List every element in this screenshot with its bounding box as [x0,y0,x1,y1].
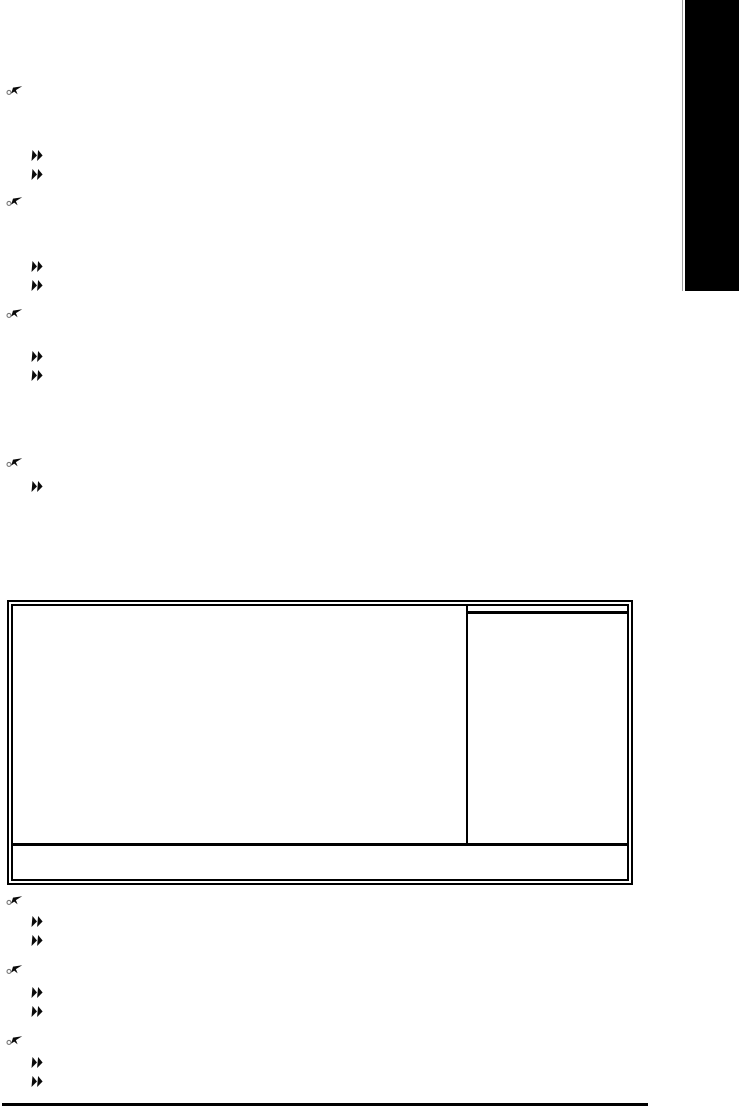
chapter-tab [685,0,739,291]
manual-page [0,0,739,1109]
bios-help-header-rule [466,611,627,614]
double-arrow-icon [31,169,43,180]
pointing-hand-icon [6,963,23,975]
double-arrow-icon [31,280,43,291]
bios-setup-screen-figure [7,600,633,885]
double-arrow-icon [31,150,43,161]
double-arrow-icon [31,261,43,272]
double-arrow-icon [31,1057,43,1068]
bios-screen-inner-border [11,604,629,881]
pointing-hand-icon [6,456,23,468]
pointing-hand-icon [6,894,23,906]
pointing-hand-icon [6,1034,23,1046]
double-arrow-icon [31,935,43,946]
double-arrow-icon [31,1006,43,1017]
page-footer-rule [2,1103,648,1106]
pointing-hand-icon [6,84,23,96]
chapter-tab-separator [682,0,683,291]
double-arrow-icon [31,987,43,998]
pointing-hand-icon [6,307,23,319]
double-arrow-icon [31,916,43,927]
double-arrow-icon [31,1076,43,1087]
double-arrow-icon [31,370,43,381]
bios-function-bar-rule [13,843,627,846]
double-arrow-icon [31,481,43,492]
bios-help-panel-divider [466,606,468,846]
pointing-hand-icon [6,195,23,207]
double-arrow-icon [31,351,43,362]
